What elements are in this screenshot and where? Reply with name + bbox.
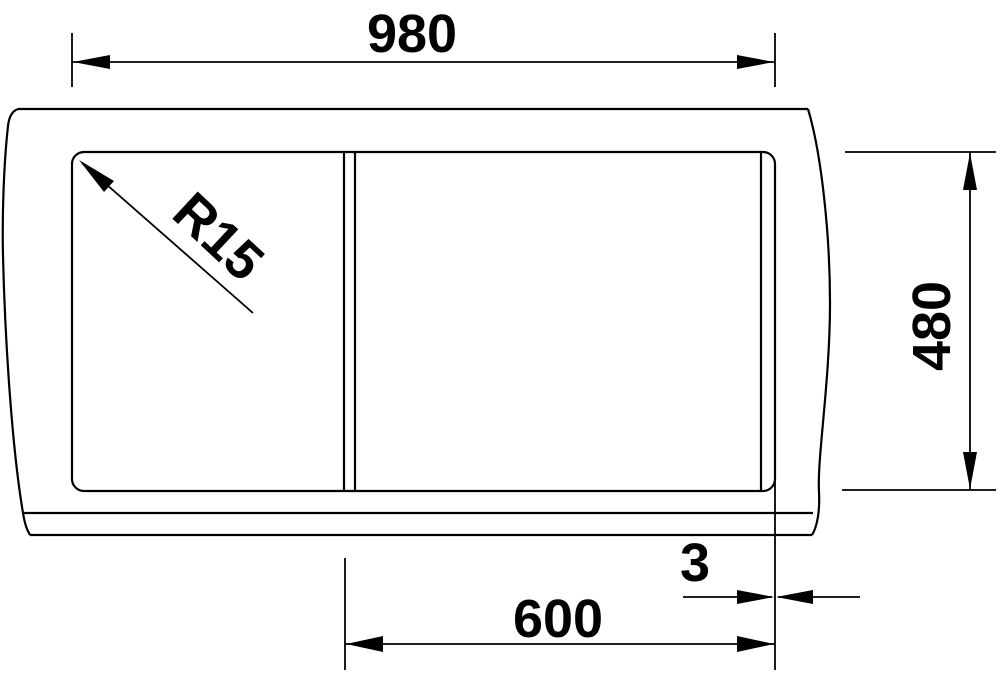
dim-overall-width-arrow-left [73, 55, 110, 69]
sink-technical-drawing: 980 480 600 3 [0, 0, 1000, 673]
dim-label-corner-radius: R15 [162, 181, 275, 292]
dim-label-edge-offset: 3 [680, 533, 710, 593]
dim-label-overall-width: 980 [367, 4, 457, 64]
dim-edge-offset-arrow-left [737, 590, 774, 604]
radius-callout: R15 [79, 160, 275, 313]
dim-overall-width: 980 [72, 4, 775, 87]
dim-depth-arrow-top [963, 153, 977, 190]
outer-rim-right-edge [808, 109, 830, 535]
basin-rounded-rect [72, 152, 775, 491]
dim-cabinet-width-arrow-right [737, 636, 774, 652]
dim-overall-width-arrow-right [737, 55, 774, 69]
dim-edge-offset: 3 [680, 533, 860, 604]
dim-cabinet-width-arrow-left [346, 636, 383, 652]
dim-label-depth: 480 [902, 281, 962, 371]
dim-depth-arrow-bottom [963, 452, 977, 489]
dim-label-cabinet-width: 600 [513, 589, 603, 649]
dim-edge-offset-arrow-right [776, 590, 813, 604]
dim-cabinet-width: 600 [345, 558, 775, 670]
outer-rim-outline [3, 109, 830, 535]
outer-rim-left-edge [3, 109, 30, 535]
dim-depth: 480 [842, 152, 996, 490]
technical-drawing-canvas: 980 480 600 3 [0, 0, 1000, 673]
inner-basin-outline [72, 152, 775, 491]
